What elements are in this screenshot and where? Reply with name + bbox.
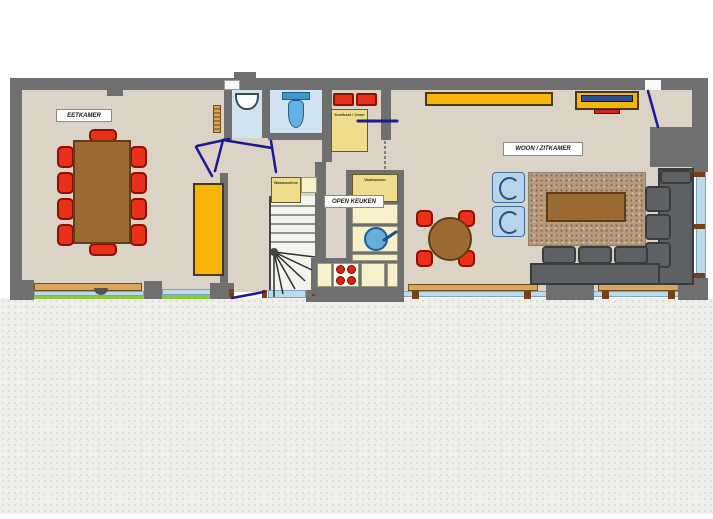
armchair bbox=[492, 206, 525, 237]
sofa-armrest bbox=[660, 170, 692, 184]
dishwasher-label: Vaatwasser bbox=[364, 177, 386, 182]
kitchen-label-text: OPEN KEUKEN bbox=[332, 199, 376, 205]
washing-machine-unit: Wasmachine bbox=[271, 177, 301, 203]
dining-room-label: EETKAMER bbox=[56, 109, 112, 122]
window-post bbox=[693, 172, 705, 177]
kitchen-red-cabinet bbox=[333, 93, 354, 106]
wall-corner-bl bbox=[10, 280, 34, 300]
sill-foot bbox=[668, 291, 675, 299]
dining-chair bbox=[57, 198, 74, 220]
window-sill-dining bbox=[34, 283, 142, 291]
fridge-oven-label: Koelkast / Oven bbox=[334, 112, 364, 117]
wall-toilet-bottom bbox=[268, 133, 330, 140]
dining-chair bbox=[57, 172, 74, 194]
dining-chair bbox=[130, 172, 147, 194]
wall-left bbox=[10, 78, 22, 298]
chimney-bump bbox=[234, 72, 256, 79]
soundbar bbox=[594, 109, 620, 114]
wall-dining-hall-top bbox=[224, 90, 232, 140]
door-post bbox=[262, 290, 267, 298]
dining-table bbox=[73, 140, 131, 244]
sill-foot bbox=[412, 291, 419, 299]
kitchen-red-cabinet bbox=[356, 93, 377, 106]
wall-washroom-toilet bbox=[262, 90, 270, 138]
dining-chair bbox=[130, 198, 147, 220]
living-room-label-text: WOON / ZITKAMER bbox=[515, 146, 570, 152]
radiator bbox=[213, 105, 221, 133]
window-above-sink bbox=[224, 80, 240, 90]
window-living-strip bbox=[390, 291, 692, 297]
door-post bbox=[229, 289, 234, 297]
burner bbox=[336, 265, 345, 274]
round-table-chair bbox=[416, 210, 433, 227]
burner bbox=[347, 265, 356, 274]
counter-cell bbox=[361, 263, 385, 287]
armchair-seat bbox=[499, 211, 520, 234]
ground-texture bbox=[0, 298, 713, 514]
sill-foot bbox=[524, 291, 531, 299]
dining-chair bbox=[57, 146, 74, 168]
staircase bbox=[269, 196, 315, 290]
sill-foot bbox=[602, 291, 609, 299]
round-table-chair bbox=[416, 250, 433, 267]
burner bbox=[347, 276, 356, 285]
dining-cabinet bbox=[193, 183, 224, 276]
window-post bbox=[693, 224, 705, 229]
wall-pier-dining bbox=[144, 281, 162, 299]
sofa-cushion bbox=[614, 246, 648, 264]
sofa-cushion bbox=[645, 186, 671, 212]
dining-chair bbox=[89, 243, 117, 256]
window-sill-living-1 bbox=[408, 284, 538, 291]
dining-chair bbox=[130, 224, 147, 246]
window-dining-1 bbox=[34, 291, 144, 296]
window-post bbox=[693, 273, 705, 278]
wall-pier-living bbox=[546, 283, 594, 300]
counter-cell bbox=[352, 254, 398, 261]
wall-right-top bbox=[692, 78, 708, 172]
round-table bbox=[428, 217, 472, 261]
counter-cell bbox=[317, 263, 332, 287]
sofa-bottom bbox=[530, 263, 660, 285]
tv-screen bbox=[581, 95, 633, 102]
window-sill-living-2 bbox=[598, 284, 680, 291]
sofa-cushion bbox=[578, 246, 612, 264]
wall-entry-closet bbox=[650, 127, 692, 167]
burner bbox=[336, 276, 345, 285]
coffee-table bbox=[546, 192, 626, 222]
counter-cell bbox=[387, 263, 398, 287]
wall-pillar-dining bbox=[107, 90, 123, 96]
washer-label: Wasmachine bbox=[274, 180, 298, 185]
sideboard bbox=[425, 92, 553, 106]
dining-chair bbox=[57, 224, 74, 246]
armchair-seat bbox=[499, 177, 520, 200]
sofa-cushion bbox=[542, 246, 576, 264]
living-room-label: WOON / ZITKAMER bbox=[503, 142, 583, 156]
kitchen-sink bbox=[364, 227, 388, 251]
entrance-opening bbox=[645, 80, 661, 90]
kitchen-label: OPEN KEUKEN bbox=[324, 195, 384, 208]
fridge-oven-unit: Koelkast / Oven bbox=[331, 109, 368, 152]
wall-top bbox=[10, 78, 708, 90]
stairs-cupboard bbox=[301, 177, 317, 193]
sofa-cushion bbox=[645, 214, 671, 240]
dining-room-label-text: EETKAMER bbox=[67, 113, 101, 119]
armchair bbox=[492, 172, 525, 203]
floorplan-image: Wasmachine Koelkast / Oven Vaatwasser bbox=[0, 0, 713, 519]
toilet-cistern bbox=[282, 92, 310, 100]
toilet-bowl bbox=[288, 100, 304, 128]
dining-chair bbox=[130, 146, 147, 168]
wall-kitchen-nook bbox=[381, 90, 391, 140]
window-stairs bbox=[268, 290, 306, 298]
